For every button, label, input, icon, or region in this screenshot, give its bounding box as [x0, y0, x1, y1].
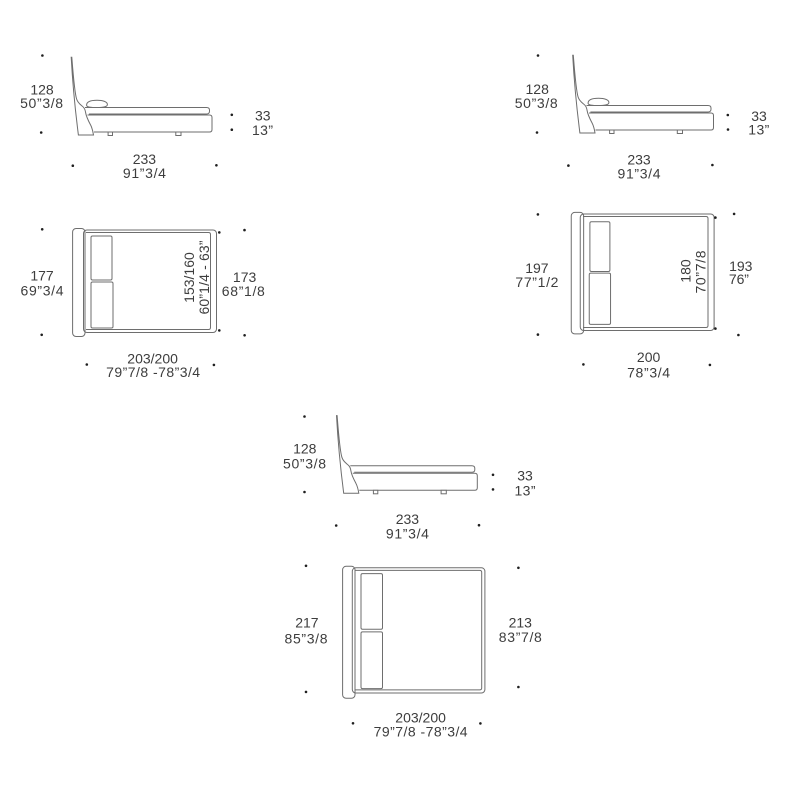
svg-text:68”1/8: 68”1/8 [222, 283, 265, 299]
svg-text:50”3/8: 50”3/8 [283, 456, 326, 472]
svg-text:50”3/8: 50”3/8 [515, 95, 558, 111]
svg-text:13”: 13” [748, 122, 769, 138]
svg-text:69”3/4: 69”3/4 [21, 282, 64, 298]
svg-text:85”3/8: 85”3/8 [285, 630, 328, 646]
svg-text:233: 233 [396, 511, 420, 527]
svg-text:50”3/8: 50”3/8 [20, 95, 63, 111]
svg-text:70”7/8: 70”7/8 [693, 250, 709, 293]
svg-text:76”: 76” [729, 271, 749, 287]
svg-text:79”7/8 -78”3/4: 79”7/8 -78”3/4 [374, 724, 468, 740]
svg-text:78”3/4: 78”3/4 [627, 364, 670, 380]
svg-text:91”3/4: 91”3/4 [123, 165, 166, 181]
svg-text:213: 213 [509, 614, 533, 630]
svg-text:60”1/4 - 63”: 60”1/4 - 63” [196, 240, 212, 314]
svg-text:200: 200 [637, 349, 661, 365]
svg-text:79”7/8 -78”3/4: 79”7/8 -78”3/4 [106, 364, 200, 380]
svg-text:217: 217 [295, 615, 319, 631]
svg-text:13”: 13” [515, 483, 536, 499]
svg-text:177: 177 [30, 268, 54, 284]
svg-text:33: 33 [517, 467, 533, 483]
svg-text:77”1/2: 77”1/2 [515, 274, 558, 290]
svg-text:180: 180 [678, 259, 694, 283]
svg-text:91”3/4: 91”3/4 [386, 525, 429, 541]
svg-text:91”3/4: 91”3/4 [618, 165, 661, 181]
svg-text:83”7/8: 83”7/8 [499, 629, 542, 645]
svg-text:13”: 13” [252, 122, 273, 138]
svg-text:153/160: 153/160 [181, 252, 197, 303]
svg-text:128: 128 [293, 441, 317, 457]
